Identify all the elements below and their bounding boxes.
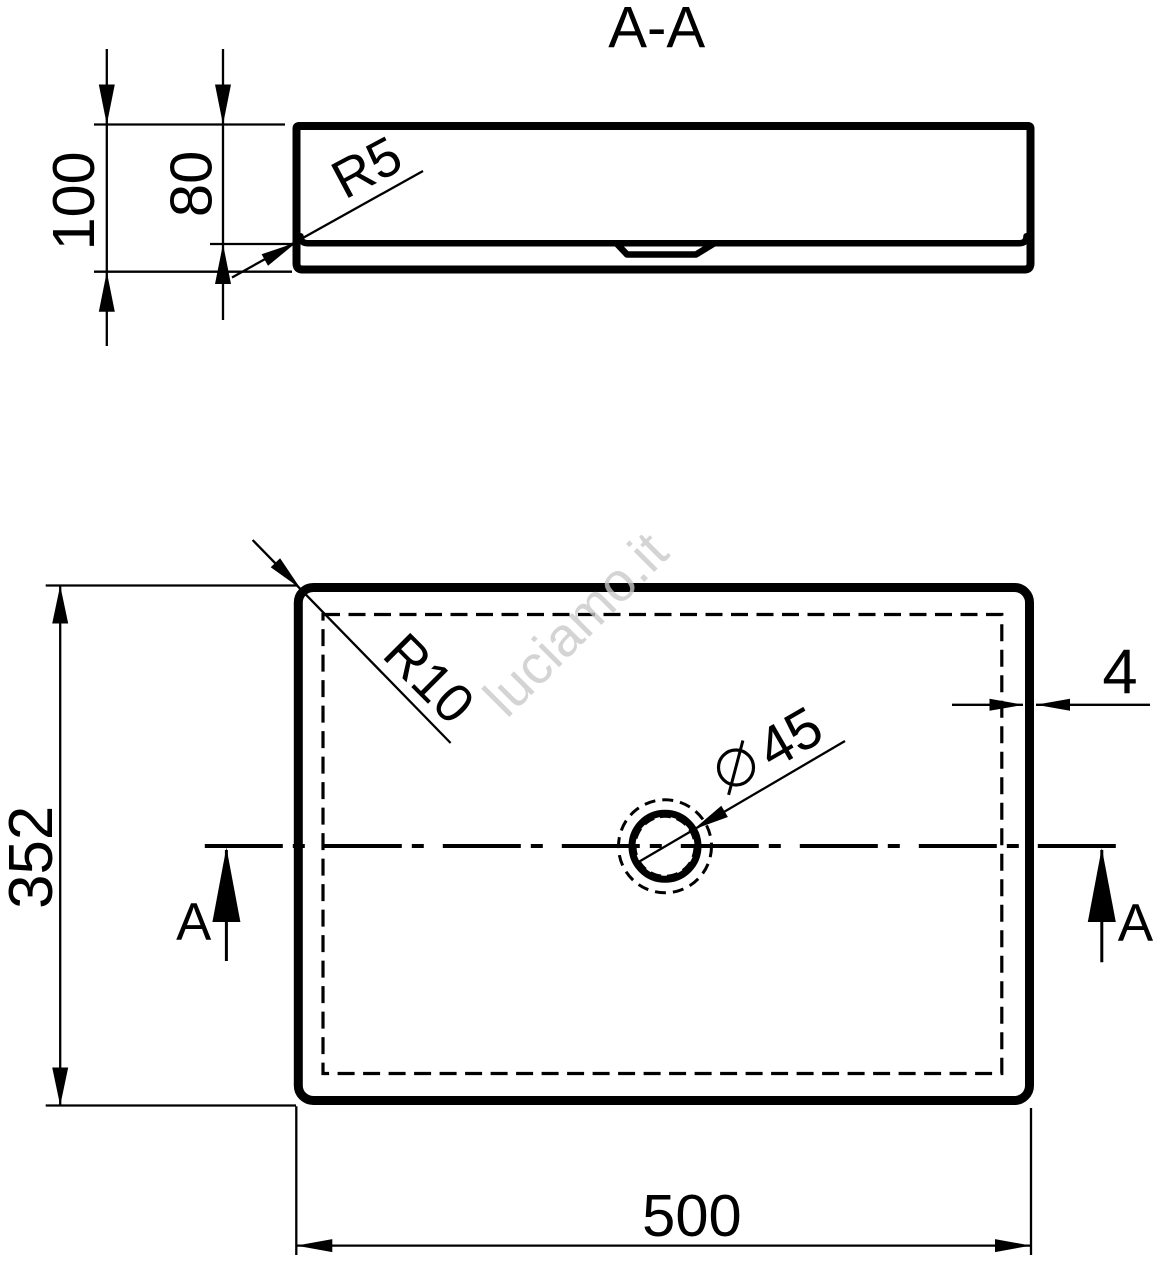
svg-text:A: A bbox=[1118, 894, 1154, 953]
svg-text:352: 352 bbox=[0, 806, 66, 909]
svg-text:100: 100 bbox=[40, 151, 107, 250]
svg-text:80: 80 bbox=[157, 151, 224, 217]
svg-text:A-A: A-A bbox=[608, 0, 705, 61]
svg-text:4: 4 bbox=[1102, 638, 1137, 708]
svg-text:A: A bbox=[176, 893, 212, 952]
svg-text:500: 500 bbox=[642, 1182, 741, 1249]
